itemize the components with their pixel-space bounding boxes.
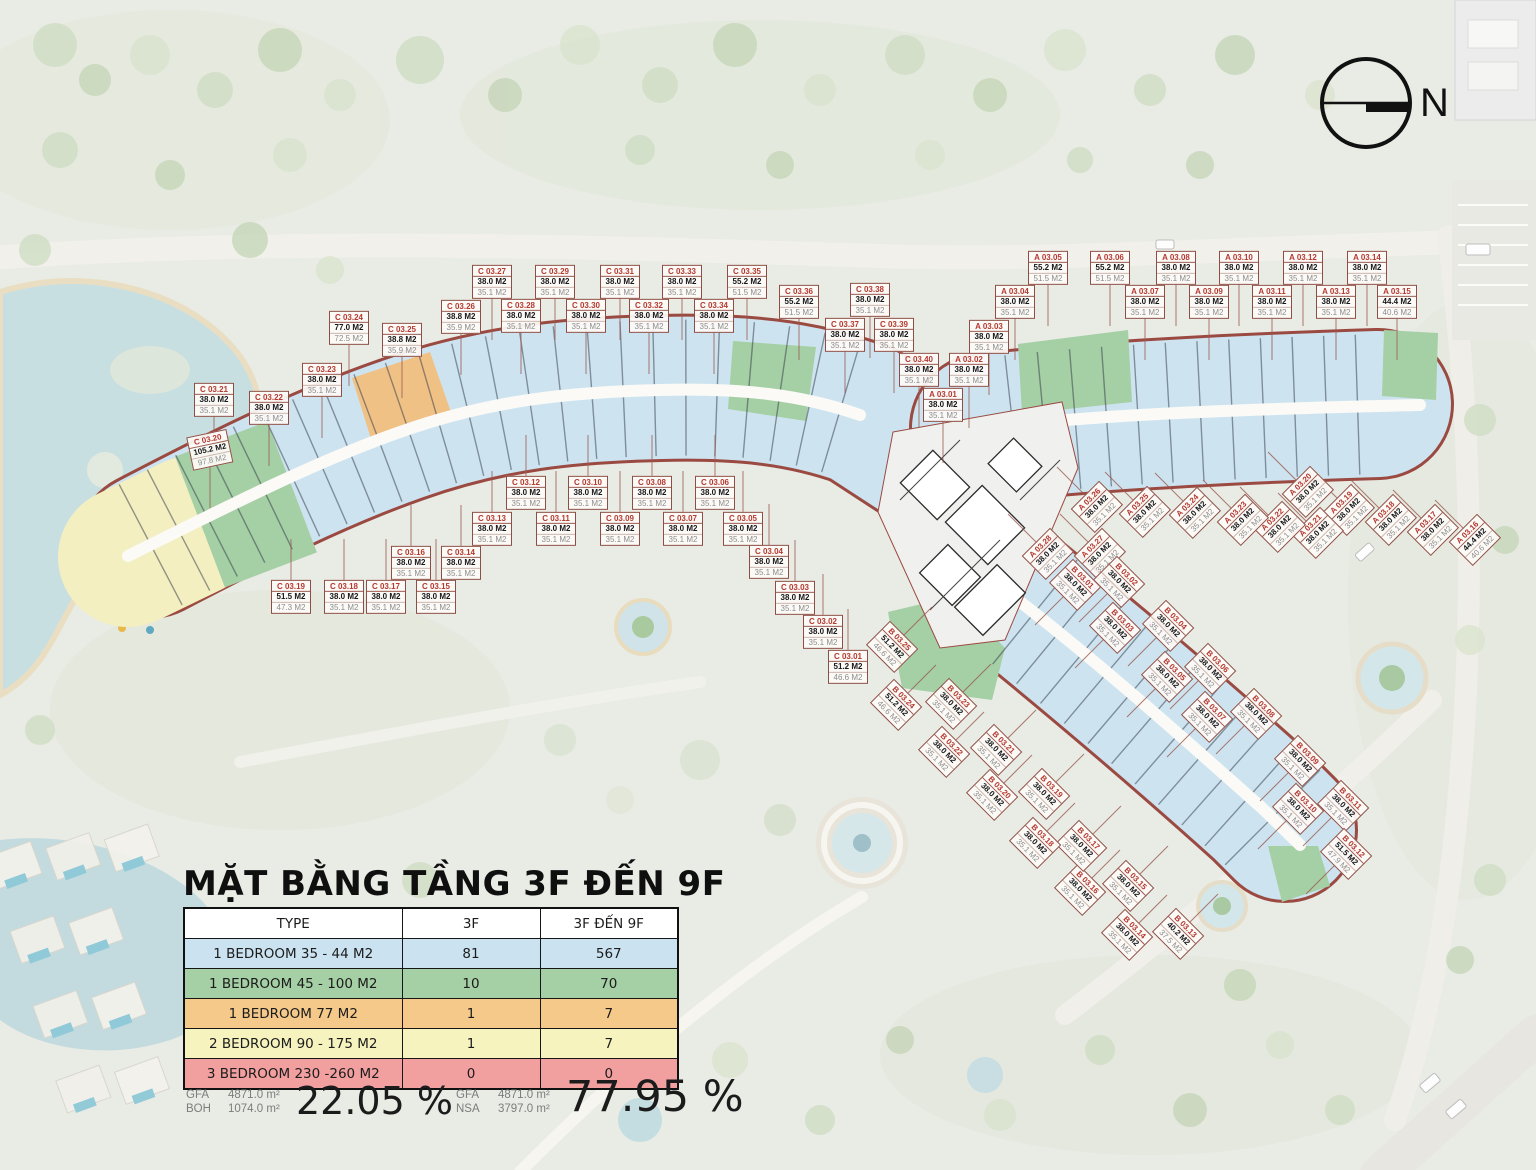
unit-gross-area: 38.0 M2 xyxy=(303,375,341,385)
unit-net-area: 35.1 M2 xyxy=(507,499,545,509)
unit-label: B 03.10 38.0 M2 35.1 M2 xyxy=(1272,783,1325,836)
unit-label: A 03.25 38.0 M2 35.1 M2 xyxy=(1119,486,1172,539)
unit-gross-area: 38.0 M2 xyxy=(633,488,671,498)
unit-code: A 03.07 xyxy=(1126,286,1164,297)
unit-label: B 03.11 38.0 M2 35.1 M2 xyxy=(1317,780,1370,833)
unit-label: A 03.05 55.2 M2 51.5 M2 xyxy=(1028,251,1068,285)
unit-code: C 03.34 xyxy=(695,300,733,311)
unit-gross-area: 38.0 M2 xyxy=(569,488,607,498)
unit-code: C 03.37 xyxy=(826,319,864,330)
unit-code: A 03.11 xyxy=(1253,286,1291,297)
unit-label: C 03.35 55.2 M2 51.5 M2 xyxy=(727,265,767,299)
unit-net-area: 35.1 M2 xyxy=(970,343,1008,353)
unit-label: A 03.23 38.0 M2 35.1 M2 xyxy=(1217,494,1270,547)
unit-gross-area: 38.0 M2 xyxy=(1220,263,1258,273)
unit-gross-area: 38.0 M2 xyxy=(875,330,913,340)
unit-code: C 03.06 xyxy=(696,477,734,488)
unit-code: C 03.30 xyxy=(567,300,605,311)
unit-code: C 03.02 xyxy=(804,616,842,627)
unit-code: C 03.04 xyxy=(750,546,788,557)
unit-net-area: 51.5 M2 xyxy=(1029,274,1067,284)
unit-label: C 03.34 38.0 M2 35.1 M2 xyxy=(694,299,734,333)
unit-label: C 03.19 51.5 M2 47.3 M2 xyxy=(271,580,311,614)
legend-cell-3f-9f: 567 xyxy=(540,939,678,969)
floor-plan-canvas: C 03.01 51.2 M2 46.6 M2 C 03.02 38.0 M2 … xyxy=(0,0,1536,1170)
unit-label: B 03.05 38.0 M2 35.1 M2 xyxy=(1141,651,1194,704)
unit-code: C 03.25 xyxy=(383,324,421,335)
legend-cell-type: 1 BEDROOM 77 M2 xyxy=(184,999,402,1029)
unit-gross-area: 38.0 M2 xyxy=(195,395,233,405)
unit-label: A 03.18 38.0 M2 35.1 M2 xyxy=(1365,494,1418,547)
unit-net-area: 35.1 M2 xyxy=(567,322,605,332)
unit-label: B 03.08 38.0 M2 35.1 M2 xyxy=(1230,688,1283,741)
legend-cell-3f: 10 xyxy=(402,969,540,999)
unit-gross-area: 38.0 M2 xyxy=(325,592,363,602)
unit-gross-area: 38.0 M2 xyxy=(851,295,889,305)
unit-net-area: 35.1 M2 xyxy=(569,499,607,509)
unit-net-area: 35.1 M2 xyxy=(664,535,702,545)
unit-net-area: 72.5 M2 xyxy=(330,334,368,344)
unit-code: A 03.14 xyxy=(1348,252,1386,263)
unit-code: C 03.03 xyxy=(776,582,814,593)
unit-label: C 03.15 38.0 M2 35.1 M2 xyxy=(416,580,456,614)
unit-code: A 03.13 xyxy=(1317,286,1355,297)
unit-label: B 03.14 38.0 M2 35.1 M2 xyxy=(1101,909,1154,962)
unit-net-area: 51.5 M2 xyxy=(1091,274,1129,284)
stat-boh-value: 1074.0 m² xyxy=(228,1103,280,1115)
unit-label: B 03.09 38.0 M2 35.1 M2 xyxy=(1274,735,1327,788)
unit-gross-area: 38.0 M2 xyxy=(724,524,762,534)
unit-code: A 03.06 xyxy=(1091,252,1129,263)
unit-label: A 03.13 38.0 M2 35.1 M2 xyxy=(1316,285,1356,319)
unit-label: A 03.03 38.0 M2 35.1 M2 xyxy=(969,320,1009,354)
unit-gross-area: 38.0 M2 xyxy=(804,627,842,637)
boh-percentage: 22.05 % xyxy=(296,1079,453,1123)
legend-table-row: 1 BEDROOM 35 - 44 M2 81 567 xyxy=(184,939,678,969)
unit-label: C 03.03 38.0 M2 35.1 M2 xyxy=(775,581,815,615)
unit-label: C 03.01 51.2 M2 46.6 M2 xyxy=(828,650,868,684)
unit-net-area: 35.1 M2 xyxy=(804,638,842,648)
unit-net-area: 35.1 M2 xyxy=(996,308,1034,318)
unit-net-area: 35.1 M2 xyxy=(1190,308,1228,318)
unit-label: B 03.20 38.0 M2 35.1 M2 xyxy=(966,769,1019,822)
stat-gfa-left-label: GFA xyxy=(186,1089,209,1101)
unit-label: C 03.05 38.0 M2 35.1 M2 xyxy=(723,512,763,546)
unit-gross-area: 38.0 M2 xyxy=(924,400,962,410)
unit-gross-area: 51.5 M2 xyxy=(272,592,310,602)
unit-net-area: 35.1 M2 xyxy=(776,604,814,614)
legend-table-row: 2 BEDROOM 90 - 175 M2 1 7 xyxy=(184,1029,678,1059)
unit-code: C 03.26 xyxy=(442,301,480,312)
unit-code: C 03.09 xyxy=(601,513,639,524)
unit-label: A 03.07 38.0 M2 35.1 M2 xyxy=(1125,285,1165,319)
unit-code: C 03.24 xyxy=(330,312,368,323)
unit-net-area: 35.1 M2 xyxy=(826,341,864,351)
unit-gross-area: 38.0 M2 xyxy=(630,311,668,321)
unit-label: B 03.25 51.2 M2 46.6 M2 xyxy=(866,621,919,674)
unit-code: C 03.32 xyxy=(630,300,668,311)
unit-label: B 03.21 38.0 M2 35.1 M2 xyxy=(970,724,1023,777)
compass: N xyxy=(1318,55,1468,155)
stat-gfa-right-value: 4871.0 m² xyxy=(498,1089,550,1101)
unit-code: A 03.08 xyxy=(1157,252,1195,263)
unit-label: A 03.02 38.0 M2 35.1 M2 xyxy=(949,353,989,387)
unit-net-area: 51.5 M2 xyxy=(728,288,766,298)
unit-label: C 03.11 38.0 M2 35.1 M2 xyxy=(536,512,576,546)
unit-label: B 03.07 38.0 M2 35.1 M2 xyxy=(1181,691,1234,744)
unit-net-area: 46.6 M2 xyxy=(829,673,867,683)
legend-cell-3f: 81 xyxy=(402,939,540,969)
unit-net-area: 35.1 M2 xyxy=(1157,274,1195,284)
unit-gross-area: 38.0 M2 xyxy=(601,524,639,534)
legend-cell-3f-9f: 70 xyxy=(540,969,678,999)
unit-net-area: 35.1 M2 xyxy=(392,569,430,579)
unit-gross-area: 38.0 M2 xyxy=(1190,297,1228,307)
unit-label: A 03.17 38.0 M2 35.1 M2 xyxy=(1407,504,1460,557)
unit-label: C 03.29 38.0 M2 35.1 M2 xyxy=(535,265,575,299)
unit-label: B 03.06 38.0 M2 35.1 M2 xyxy=(1184,643,1237,696)
unit-code: C 03.31 xyxy=(601,266,639,277)
unit-label: C 03.12 38.0 M2 35.1 M2 xyxy=(506,476,546,510)
unit-label: C 03.17 38.0 M2 35.1 M2 xyxy=(366,580,406,614)
unit-label: B 03.03 38.0 M2 35.1 M2 xyxy=(1089,602,1142,655)
unit-net-area: 51.5 M2 xyxy=(780,308,818,318)
unit-label: C 03.24 77.0 M2 72.5 M2 xyxy=(329,311,369,345)
unit-net-area: 35.1 M2 xyxy=(950,376,988,386)
unit-label: C 03.02 38.0 M2 35.1 M2 xyxy=(803,615,843,649)
nsa-percentage: 77.95 % xyxy=(566,1072,744,1122)
unit-code: C 03.22 xyxy=(250,392,288,403)
unit-gross-area: 38.0 M2 xyxy=(1253,297,1291,307)
unit-code: C 03.16 xyxy=(392,547,430,558)
unit-net-area: 35.1 M2 xyxy=(924,411,962,421)
unit-code: C 03.29 xyxy=(536,266,574,277)
unit-net-area: 35.1 M2 xyxy=(536,288,574,298)
unit-gross-area: 38.0 M2 xyxy=(567,311,605,321)
unit-label: C 03.13 38.0 M2 35.1 M2 xyxy=(472,512,512,546)
unit-label: C 03.33 38.0 M2 35.1 M2 xyxy=(662,265,702,299)
unit-net-area: 35.1 M2 xyxy=(663,288,701,298)
unit-net-area: 35.1 M2 xyxy=(1348,274,1386,284)
unit-code: C 03.11 xyxy=(537,513,575,524)
stat-nsa-label: NSA xyxy=(456,1103,480,1115)
unit-net-area: 35.1 M2 xyxy=(537,535,575,545)
unit-label: B 03.04 38.0 M2 35.1 M2 xyxy=(1142,600,1195,653)
unit-gross-area: 55.2 M2 xyxy=(728,277,766,287)
unit-code: C 03.07 xyxy=(664,513,702,524)
unit-code: A 03.01 xyxy=(924,389,962,400)
unit-code: A 03.10 xyxy=(1220,252,1258,263)
unit-label: C 03.09 38.0 M2 35.1 M2 xyxy=(600,512,640,546)
unit-label: C 03.25 38.8 M2 35.9 M2 xyxy=(382,323,422,357)
unit-gross-area: 38.0 M2 xyxy=(1157,263,1195,273)
legend-header-3f-9f: 3F ĐẾN 9F xyxy=(540,908,678,939)
unit-net-area: 35.1 M2 xyxy=(1253,308,1291,318)
unit-gross-area: 55.2 M2 xyxy=(1091,263,1129,273)
unit-label: B 03.17 38.0 M2 35.1 M2 xyxy=(1055,820,1108,873)
unit-gross-area: 38.0 M2 xyxy=(417,592,455,602)
unit-gross-area: 38.0 M2 xyxy=(367,592,405,602)
unit-code: A 03.15 xyxy=(1378,286,1416,297)
legend-cell-type: 2 BEDROOM 90 - 175 M2 xyxy=(184,1029,402,1059)
legend-cell-3f-9f: 7 xyxy=(540,1029,678,1059)
unit-code: C 03.17 xyxy=(367,581,405,592)
unit-net-area: 35.1 M2 xyxy=(195,406,233,416)
unit-label: A 03.15 44.4 M2 40.6 M2 xyxy=(1377,285,1417,319)
unit-label: C 03.07 38.0 M2 35.1 M2 xyxy=(663,512,703,546)
unit-label: B 03.15 38.0 M2 35.1 M2 xyxy=(1102,860,1155,913)
unit-gross-area: 38.0 M2 xyxy=(696,488,734,498)
unit-label: A 03.14 38.0 M2 35.1 M2 xyxy=(1347,251,1387,285)
unit-label: B 03.19 38.0 M2 35.1 M2 xyxy=(1018,768,1071,821)
unit-net-area: 35.1 M2 xyxy=(601,288,639,298)
unit-label: C 03.27 38.0 M2 35.1 M2 xyxy=(472,265,512,299)
unit-code: C 03.19 xyxy=(272,581,310,592)
legend-cell-3f-9f: 7 xyxy=(540,999,678,1029)
unit-net-area: 35.1 M2 xyxy=(1284,274,1322,284)
unit-label: A 03.12 38.0 M2 35.1 M2 xyxy=(1283,251,1323,285)
unit-gross-area: 38.0 M2 xyxy=(970,332,1008,342)
unit-net-area: 35.1 M2 xyxy=(1220,274,1258,284)
unit-net-area: 35.1 M2 xyxy=(724,535,762,545)
unit-label: C 03.32 38.0 M2 35.1 M2 xyxy=(629,299,669,333)
compass-north-label: N xyxy=(1420,81,1449,126)
compass-needle-icon xyxy=(1366,103,1410,112)
unit-net-area: 35.1 M2 xyxy=(695,322,733,332)
unit-code: C 03.13 xyxy=(473,513,511,524)
unit-gross-area: 38.0 M2 xyxy=(537,524,575,534)
unit-gross-area: 38.0 M2 xyxy=(663,277,701,287)
legend-header-3f: 3F xyxy=(402,908,540,939)
unit-label: C 03.38 38.0 M2 35.1 M2 xyxy=(850,283,890,317)
unit-gross-area: 38.8 M2 xyxy=(383,335,421,345)
unit-label: A 03.06 55.2 M2 51.5 M2 xyxy=(1090,251,1130,285)
unit-code: A 03.09 xyxy=(1190,286,1228,297)
unit-code: C 03.38 xyxy=(851,284,889,295)
unit-code: C 03.10 xyxy=(569,477,607,488)
unit-code: C 03.39 xyxy=(875,319,913,330)
unit-code: C 03.23 xyxy=(303,364,341,375)
unit-label: B 03.12 51.5 M2 47.9 M2 xyxy=(1320,828,1373,881)
legend-header-row: TYPE 3F 3F ĐẾN 9F xyxy=(184,908,678,939)
unit-label: B 03.13 40.2 M2 37.5 M2 xyxy=(1152,908,1205,961)
unit-code: A 03.12 xyxy=(1284,252,1322,263)
unit-net-area: 35.1 M2 xyxy=(851,306,889,316)
unit-label: A 03.10 38.0 M2 35.1 M2 xyxy=(1219,251,1259,285)
unit-label: C 03.10 38.0 M2 35.1 M2 xyxy=(568,476,608,510)
unit-label: C 03.31 38.0 M2 35.1 M2 xyxy=(600,265,640,299)
unit-gross-area: 38.0 M2 xyxy=(502,311,540,321)
unit-net-area: 35.1 M2 xyxy=(875,341,913,351)
unit-code: A 03.02 xyxy=(950,354,988,365)
unit-code: C 03.28 xyxy=(502,300,540,311)
unit-gross-area: 38.0 M2 xyxy=(750,557,788,567)
unit-label: C 03.04 38.0 M2 35.1 M2 xyxy=(749,545,789,579)
unit-net-area: 40.6 M2 xyxy=(1378,308,1416,318)
unit-net-area: 35.1 M2 xyxy=(303,386,341,396)
unit-gross-area: 38.0 M2 xyxy=(900,365,938,375)
unit-label: B 03.23 38.0 M2 35.1 M2 xyxy=(925,678,978,731)
unit-label: C 03.20 105.2 M2 97.8 M2 xyxy=(186,429,234,471)
unit-code: C 03.05 xyxy=(724,513,762,524)
unit-label: C 03.26 38.8 M2 35.9 M2 xyxy=(441,300,481,334)
unit-gross-area: 55.2 M2 xyxy=(1029,263,1067,273)
unit-net-area: 35.1 M2 xyxy=(325,603,363,613)
unit-net-area: 35.1 M2 xyxy=(1317,308,1355,318)
unit-label: C 03.30 38.0 M2 35.1 M2 xyxy=(566,299,606,333)
unit-code: C 03.08 xyxy=(633,477,671,488)
unit-net-area: 35.9 M2 xyxy=(442,323,480,333)
unit-net-area: 35.1 M2 xyxy=(417,603,455,613)
unit-gross-area: 38.0 M2 xyxy=(950,365,988,375)
unit-gross-area: 38.0 M2 xyxy=(536,277,574,287)
unit-net-area: 35.1 M2 xyxy=(473,288,511,298)
unit-net-area: 47.3 M2 xyxy=(272,603,310,613)
unit-gross-area: 38.0 M2 xyxy=(442,558,480,568)
unit-label: C 03.40 38.0 M2 35.1 M2 xyxy=(899,353,939,387)
unit-label: C 03.36 55.2 M2 51.5 M2 xyxy=(779,285,819,319)
unit-gross-area: 44.4 M2 xyxy=(1378,297,1416,307)
unit-label: C 03.39 38.0 M2 35.1 M2 xyxy=(874,318,914,352)
unit-code: C 03.33 xyxy=(663,266,701,277)
unit-code: C 03.01 xyxy=(829,651,867,662)
unit-gross-area: 38.0 M2 xyxy=(250,403,288,413)
stat-nsa-value: 3797.0 m² xyxy=(498,1103,550,1115)
legend-cell-3f: 1 xyxy=(402,999,540,1029)
unit-code: C 03.36 xyxy=(780,286,818,297)
unit-gross-area: 38.0 M2 xyxy=(1284,263,1322,273)
unit-gross-area: 38.0 M2 xyxy=(473,277,511,287)
stat-boh-label: BOH xyxy=(186,1103,211,1115)
unit-code: C 03.14 xyxy=(442,547,480,558)
unit-gross-area: 38.0 M2 xyxy=(1348,263,1386,273)
unit-label: A 03.09 38.0 M2 35.1 M2 xyxy=(1189,285,1229,319)
unit-label: A 03.16 44.4 M2 40.6 M2 xyxy=(1449,514,1502,567)
unit-gross-area: 38.0 M2 xyxy=(996,297,1034,307)
unit-label: A 03.11 38.0 M2 35.1 M2 xyxy=(1252,285,1292,319)
unit-net-area: 35.1 M2 xyxy=(633,499,671,509)
legend-table-row: 1 BEDROOM 45 - 100 M2 10 70 xyxy=(184,969,678,999)
legend-header-type: TYPE xyxy=(184,908,402,939)
legend-table-body: 1 BEDROOM 35 - 44 M2 81 567 1 BEDROOM 45… xyxy=(184,939,678,1090)
unit-code: C 03.40 xyxy=(900,354,938,365)
unit-label: C 03.18 38.0 M2 35.1 M2 xyxy=(324,580,364,614)
unit-gross-area: 38.0 M2 xyxy=(695,311,733,321)
unit-net-area: 35.1 M2 xyxy=(750,568,788,578)
unit-gross-area: 38.8 M2 xyxy=(442,312,480,322)
unit-code: C 03.21 xyxy=(195,384,233,395)
unit-net-area: 35.1 M2 xyxy=(250,414,288,424)
unit-code: C 03.27 xyxy=(473,266,511,277)
unit-label: C 03.22 38.0 M2 35.1 M2 xyxy=(249,391,289,425)
unit-code: C 03.35 xyxy=(728,266,766,277)
unit-label: C 03.23 38.0 M2 35.1 M2 xyxy=(302,363,342,397)
unit-net-area: 35.1 M2 xyxy=(696,499,734,509)
unit-net-area: 35.1 M2 xyxy=(442,569,480,579)
unit-label: A 03.04 38.0 M2 35.1 M2 xyxy=(995,285,1035,319)
unit-gross-area: 38.0 M2 xyxy=(601,277,639,287)
unit-code: A 03.04 xyxy=(996,286,1034,297)
unit-net-area: 35.1 M2 xyxy=(601,535,639,545)
unit-code: C 03.15 xyxy=(417,581,455,592)
unit-gross-area: 38.0 M2 xyxy=(1317,297,1355,307)
unit-gross-area: 38.0 M2 xyxy=(507,488,545,498)
unit-net-area: 35.1 M2 xyxy=(630,322,668,332)
unit-label: B 03.16 38.0 M2 35.1 M2 xyxy=(1054,864,1107,917)
unit-label: C 03.16 38.0 M2 35.1 M2 xyxy=(391,546,431,580)
unit-gross-area: 38.0 M2 xyxy=(776,593,814,603)
unit-label: C 03.08 38.0 M2 35.1 M2 xyxy=(632,476,672,510)
unit-code: A 03.05 xyxy=(1029,252,1067,263)
unit-label: A 03.24 38.0 M2 35.1 M2 xyxy=(1169,487,1222,540)
unit-gross-area: 38.0 M2 xyxy=(826,330,864,340)
unit-gross-area: 77.0 M2 xyxy=(330,323,368,333)
legend-cell-type: 1 BEDROOM 45 - 100 M2 xyxy=(184,969,402,999)
unit-label: C 03.28 38.0 M2 35.1 M2 xyxy=(501,299,541,333)
unit-gross-area: 38.0 M2 xyxy=(392,558,430,568)
legend-cell-type: 1 BEDROOM 35 - 44 M2 xyxy=(184,939,402,969)
unit-gross-area: 38.0 M2 xyxy=(664,524,702,534)
stat-gfa-left-value: 4871.0 m² xyxy=(228,1089,280,1101)
unit-net-area: 35.1 M2 xyxy=(473,535,511,545)
unit-label: A 03.26 38.0 M2 35.1 M2 xyxy=(1071,481,1124,534)
unit-gross-area: 38.0 M2 xyxy=(473,524,511,534)
unit-gross-area: 51.2 M2 xyxy=(829,662,867,672)
unit-label: C 03.14 38.0 M2 35.1 M2 xyxy=(441,546,481,580)
legend-table-row: 1 BEDROOM 77 M2 1 7 xyxy=(184,999,678,1029)
unit-label: C 03.37 38.0 M2 35.1 M2 xyxy=(825,318,865,352)
legend-cell-3f: 1 xyxy=(402,1029,540,1059)
unit-label: B 03.22 38.0 M2 35.1 M2 xyxy=(918,726,971,779)
page-title: MẶT BẰNG TẦNG 3F ĐẾN 9F xyxy=(183,864,725,904)
unit-net-area: 35.9 M2 xyxy=(383,346,421,356)
unit-gross-area: 55.2 M2 xyxy=(780,297,818,307)
unit-code: A 03.03 xyxy=(970,321,1008,332)
unit-code: C 03.18 xyxy=(325,581,363,592)
unit-label: B 03.18 38.0 M2 35.1 M2 xyxy=(1009,817,1062,870)
unit-gross-area: 38.0 M2 xyxy=(1126,297,1164,307)
unit-label: C 03.21 38.0 M2 35.1 M2 xyxy=(194,383,234,417)
unit-net-area: 35.1 M2 xyxy=(1126,308,1164,318)
unit-code: C 03.12 xyxy=(507,477,545,488)
stat-gfa-right-label: GFA xyxy=(456,1089,479,1101)
unit-label: B 03.24 51.2 M2 46.6 M2 xyxy=(870,679,923,732)
unit-label: C 03.06 38.0 M2 35.1 M2 xyxy=(695,476,735,510)
unit-label: A 03.08 38.0 M2 35.1 M2 xyxy=(1156,251,1196,285)
legend-table: TYPE 3F 3F ĐẾN 9F 1 BEDROOM 35 - 44 M2 8… xyxy=(183,907,679,1090)
unit-label: A 03.01 38.0 M2 35.1 M2 xyxy=(923,388,963,422)
unit-net-area: 35.1 M2 xyxy=(367,603,405,613)
unit-net-area: 35.1 M2 xyxy=(900,376,938,386)
unit-net-area: 35.1 M2 xyxy=(502,322,540,332)
